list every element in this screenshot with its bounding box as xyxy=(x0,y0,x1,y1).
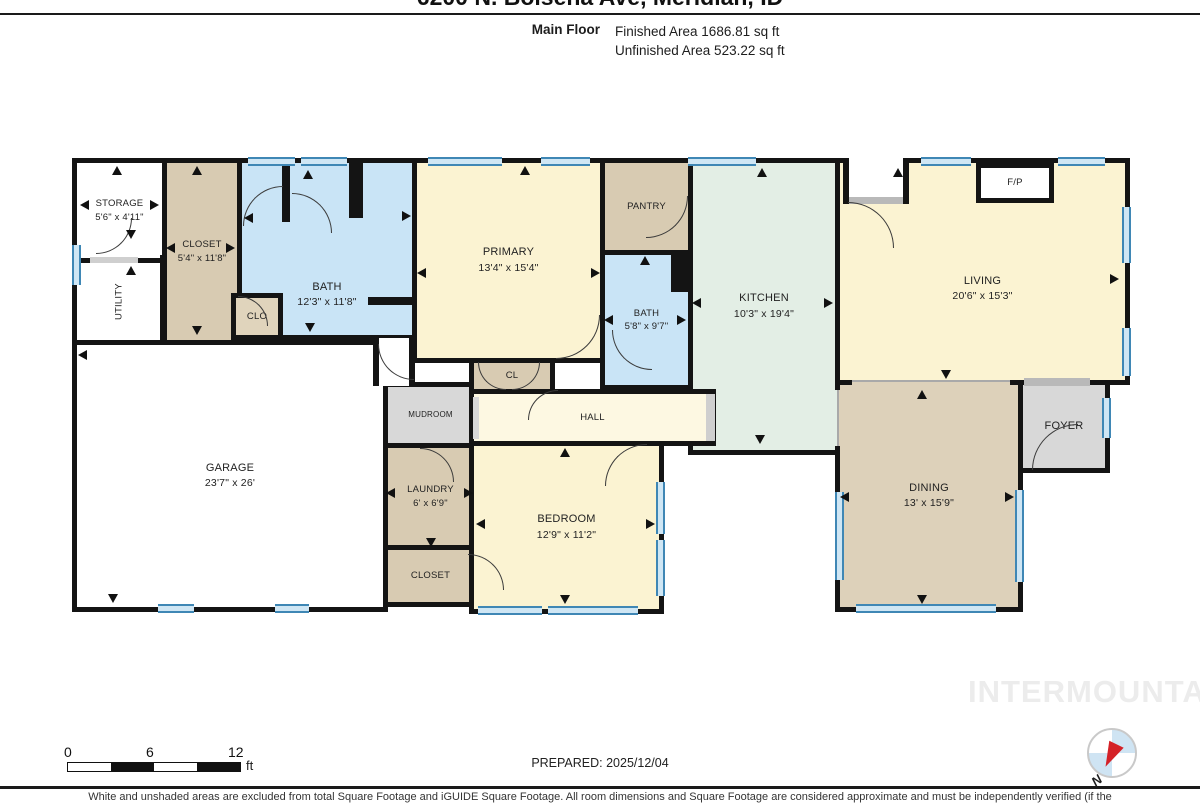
window xyxy=(921,157,971,166)
dimension-arrow-icon xyxy=(305,323,315,332)
dimension-arrow-icon xyxy=(677,315,686,325)
dimension-arrow-icon xyxy=(226,243,235,253)
window xyxy=(275,604,309,613)
dimension-arrow-icon xyxy=(591,268,600,278)
dimension-arrow-icon xyxy=(192,166,202,175)
window xyxy=(72,245,81,285)
dimension-arrow-icon xyxy=(692,298,701,308)
window xyxy=(248,157,295,166)
window xyxy=(835,492,844,580)
dimension-arrow-icon xyxy=(604,315,613,325)
room-hall: HALL xyxy=(469,389,716,446)
utility-threshold xyxy=(90,257,138,263)
dimension-arrow-icon xyxy=(941,370,951,379)
window xyxy=(158,604,194,613)
watermark: INTERMOUNTAIN xyxy=(968,674,1200,710)
dimension-arrow-icon xyxy=(1005,492,1014,502)
fireplace: F/P xyxy=(976,163,1054,203)
dimension-arrow-icon xyxy=(303,170,313,179)
dimension-arrow-icon xyxy=(78,350,87,360)
dimension-arrow-icon xyxy=(560,595,570,604)
disclaimer-text: White and unshaded areas are excluded fr… xyxy=(0,791,1200,803)
window xyxy=(478,606,542,615)
dimension-arrow-icon xyxy=(244,213,253,223)
dimension-arrow-icon xyxy=(917,595,927,604)
dimension-arrow-icon xyxy=(476,519,485,529)
dimension-arrow-icon xyxy=(386,488,395,498)
room-dining: DINING13' x 15'9" xyxy=(835,380,1023,612)
foyer-threshold xyxy=(1024,378,1090,386)
dimension-arrow-icon xyxy=(108,594,118,603)
room-garage: GARAGE23'7" x 26' xyxy=(72,340,388,612)
interior-wall xyxy=(671,250,688,292)
window xyxy=(688,157,756,166)
window xyxy=(548,606,638,615)
footer-divider xyxy=(0,786,1200,789)
window xyxy=(301,157,347,166)
room-closet-bedroom: CLOSET xyxy=(383,545,478,607)
window xyxy=(428,157,502,166)
dimension-arrow-icon xyxy=(640,256,650,265)
room-mudroom: MUDROOM xyxy=(383,382,478,448)
dimension-arrow-icon xyxy=(417,268,426,278)
dimension-arrow-icon xyxy=(126,266,136,275)
compass-icon: N xyxy=(1082,727,1142,791)
room-opening xyxy=(706,394,715,441)
room-opening xyxy=(473,397,485,439)
entry-alcove xyxy=(843,158,909,204)
window xyxy=(856,604,996,613)
dimension-arrow-icon xyxy=(757,168,767,177)
dimension-arrow-icon xyxy=(150,200,159,210)
dimension-arrow-icon xyxy=(824,298,833,308)
window xyxy=(656,482,665,534)
dimension-arrow-icon xyxy=(917,390,927,399)
window xyxy=(1015,490,1024,582)
dimension-arrow-icon xyxy=(80,200,89,210)
window xyxy=(656,540,665,596)
dimension-arrow-icon xyxy=(893,168,903,177)
window xyxy=(1122,207,1131,263)
dimension-arrow-icon xyxy=(560,448,570,457)
room-utility: UTILITY xyxy=(72,258,167,345)
interior-wall xyxy=(368,297,417,305)
dimension-arrow-icon xyxy=(402,211,411,221)
interior-wall xyxy=(160,255,167,345)
prepared-date: PREPARED: 2025/12/04 xyxy=(0,756,1200,770)
room-opening xyxy=(833,390,843,446)
dimension-arrow-icon xyxy=(840,492,849,502)
dimension-arrow-icon xyxy=(426,538,436,547)
dimension-arrow-icon xyxy=(464,488,473,498)
dimension-arrow-icon xyxy=(166,243,175,253)
dimension-arrow-icon xyxy=(126,230,136,239)
dimension-arrow-icon xyxy=(1110,274,1119,284)
dimension-arrow-icon xyxy=(755,435,765,444)
interior-wall xyxy=(282,158,290,222)
dimension-arrow-icon xyxy=(192,326,202,335)
window xyxy=(1102,398,1111,438)
dimension-arrow-icon xyxy=(112,166,122,175)
window xyxy=(1058,157,1105,166)
interior-wall xyxy=(349,158,363,218)
room-opening xyxy=(852,377,1010,386)
window xyxy=(1122,328,1131,376)
dimension-arrow-icon xyxy=(520,166,530,175)
dimension-arrow-icon xyxy=(646,519,655,529)
window xyxy=(541,157,590,166)
